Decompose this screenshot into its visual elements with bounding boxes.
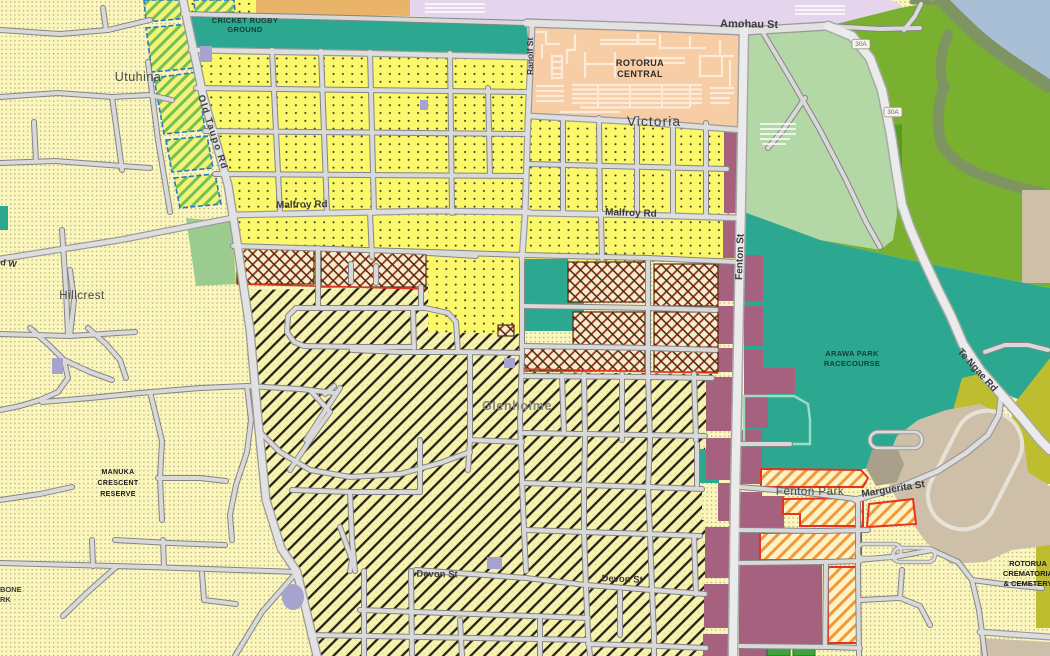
svg-text:Utuhina: Utuhina [115,70,162,84]
svg-text:Malfroy Rd: Malfroy Rd [276,199,328,211]
svg-text:& CEMETERY: & CEMETERY [1004,579,1050,588]
svg-text:RK: RK [0,595,11,604]
svg-text:CRESCENT: CRESCENT [98,480,139,487]
svg-text:30A: 30A [887,109,899,116]
svg-text:Devon St: Devon St [601,573,643,585]
svg-text:GROUND: GROUND [227,25,262,34]
svg-text:Glenholme: Glenholme [482,399,552,413]
svg-text:ROTORUA: ROTORUA [1009,559,1047,568]
svg-text:ROTORUA: ROTORUA [616,58,664,68]
svg-text:Fenton St: Fenton St [734,233,747,280]
svg-text:30A: 30A [855,41,867,48]
svg-text:Malfroy Rd: Malfroy Rd [605,207,657,220]
svg-text:Hillcrest: Hillcrest [59,290,105,302]
svg-text:Fenton Park: Fenton Park [776,486,844,498]
svg-text:Ranolf St: Ranolf St [525,38,535,75]
svg-text:ARAWA PARK: ARAWA PARK [825,349,879,358]
svg-text:RESERVE: RESERVE [100,491,135,498]
svg-text:Devon St: Devon St [416,569,458,581]
svg-text:BONE: BONE [0,585,22,594]
svg-text:CRICKET RUGBY: CRICKET RUGBY [212,16,278,25]
svg-text:MANUKA: MANUKA [102,469,135,476]
svg-text:CREMATORIA: CREMATORIA [1003,569,1050,578]
svg-text:Amohau St: Amohau St [720,18,779,31]
svg-text:CENTRAL: CENTRAL [617,69,663,79]
svg-text:Victoria: Victoria [627,114,681,129]
svg-text:RACECOURSE: RACECOURSE [824,359,880,368]
